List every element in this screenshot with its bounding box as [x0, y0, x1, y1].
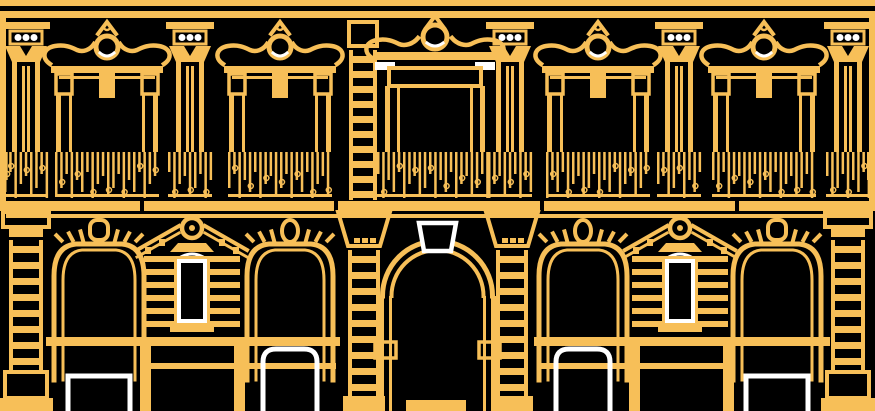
portal-keystone-white	[419, 223, 456, 251]
balcony-floor-band	[0, 201, 875, 218]
facade-illustration-stage	[0, 0, 875, 411]
building-facade-elevation-drawing	[0, 0, 875, 411]
